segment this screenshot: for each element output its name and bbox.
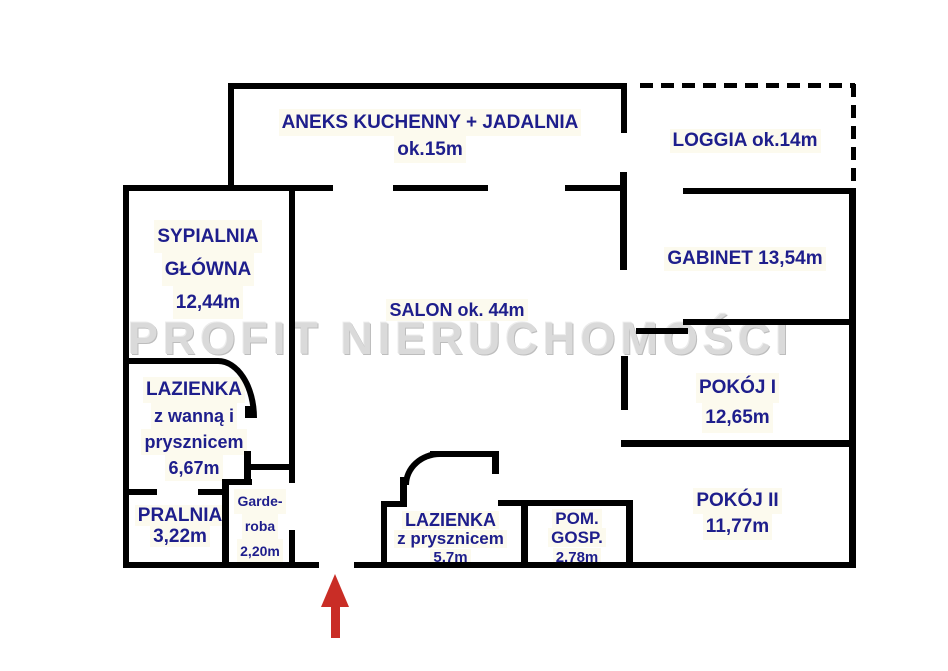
wall-bathroom-main-tick xyxy=(245,406,252,418)
wall-salon-top-mid xyxy=(393,185,488,191)
kitchen-name: ANEKS KUCHENNY + JADALNIA xyxy=(279,109,582,136)
wall-wardrobe-right-lower xyxy=(289,530,295,568)
wall-loggia-right-dashed xyxy=(851,84,856,188)
bathroom-main-desc-2: prysznicem xyxy=(141,429,246,455)
loggia-name: LOGGIA ok.14m xyxy=(670,129,821,153)
wall-room1-left xyxy=(621,356,628,410)
room2-name: POKÓJ II xyxy=(693,488,781,514)
master-bedroom-area: 12,44m xyxy=(173,286,243,319)
wall-outer-bottom-right xyxy=(354,562,856,568)
room1-area: 12,65m xyxy=(702,403,772,433)
kitchen-area: ok.15m xyxy=(394,136,465,163)
wall-room1-top-stub xyxy=(636,328,688,334)
wall-kitchen-top xyxy=(228,83,627,89)
floor-plan: PROFIT NIERUCHOMOŚCI ANEKS KUCHENNY + xyxy=(0,0,948,671)
bathroom-shower-name: LAZIENKA xyxy=(402,511,499,529)
room-label-gabinet: GABINET 13,54m xyxy=(640,247,850,271)
laundry-name: PRALNIA xyxy=(135,505,225,526)
room2-area: 11,77m xyxy=(703,514,772,540)
wall-laundry-top-right xyxy=(198,489,224,495)
room-label-loggia: LOGGIA ok.14m xyxy=(640,129,850,153)
wall-room1-bottom xyxy=(621,440,855,447)
room-label-wardrobe: Garde- roba 2,20m xyxy=(230,489,290,564)
room-label-utility: POM. GOSP. 2,78m xyxy=(528,509,626,567)
wall-loggia-bottom xyxy=(683,188,853,194)
bathroom-shower-desc: z prysznicem xyxy=(394,530,507,548)
wall-loggia-top-dashed xyxy=(640,83,855,88)
salon-name: SALON ok. 44m xyxy=(386,299,527,321)
wall-kitchen-loggia-divider xyxy=(621,83,627,133)
wall-laundry-top-left xyxy=(123,489,157,495)
wall-bathroom-main-top xyxy=(128,358,218,364)
bathroom-main-area: 6,67m xyxy=(165,455,222,481)
wall-bathroom-shower-top xyxy=(430,451,498,457)
laundry-area: 3,22m xyxy=(150,526,210,547)
wall-utility-left xyxy=(521,500,528,568)
wall-outer-right xyxy=(849,188,856,568)
master-bedroom-name-2: GŁÓWNA xyxy=(162,253,255,286)
room-label-laundry: PRALNIA 3,22m xyxy=(130,505,230,547)
wall-gabinet-left xyxy=(620,172,627,270)
entrance-arrow-shaft xyxy=(331,601,340,638)
wall-wardrobe-step xyxy=(228,479,252,485)
room-label-kitchen: ANEKS KUCHENNY + JADALNIA ok.15m xyxy=(240,109,620,163)
room1-name: POKÓJ I xyxy=(696,373,779,403)
wall-bedroom-top xyxy=(123,185,333,191)
wall-room2-left xyxy=(626,500,633,568)
wall-outer-left xyxy=(123,185,129,568)
wall-kitchen-left xyxy=(228,83,234,189)
wall-gabinet-bottom xyxy=(683,319,855,325)
wall-salon-top-right xyxy=(565,185,627,191)
room-label-room1: POKÓJ I 12,65m xyxy=(640,373,835,433)
wall-bathroom-shower-left xyxy=(381,503,387,568)
room-label-master-bedroom: SYPIALNIA GŁÓWNA 12,44m xyxy=(133,220,283,319)
master-bedroom-name-1: SYPIALNIA xyxy=(154,220,261,253)
wall-wardrobe-top xyxy=(247,464,295,470)
utility-name-1: POM. xyxy=(552,509,601,528)
wall-bedroom-right xyxy=(289,185,295,483)
wardrobe-name-1: Garde- xyxy=(234,489,285,514)
utility-name-2: GOSP. xyxy=(548,528,606,547)
gabinet-name: GABINET 13,54m xyxy=(664,247,825,271)
wardrobe-name-2: roba xyxy=(242,514,278,539)
room-label-room2: POKÓJ II 11,77m xyxy=(640,488,835,540)
wall-bathroom-shower-stub xyxy=(492,451,499,474)
room-label-bathroom-shower: LAZIENKA z prysznicem 5,7m xyxy=(378,511,523,567)
room-label-salon: SALON ok. 44m xyxy=(357,299,557,321)
wall-utility-top xyxy=(498,500,633,506)
wardrobe-area: 2,20m xyxy=(237,539,283,564)
